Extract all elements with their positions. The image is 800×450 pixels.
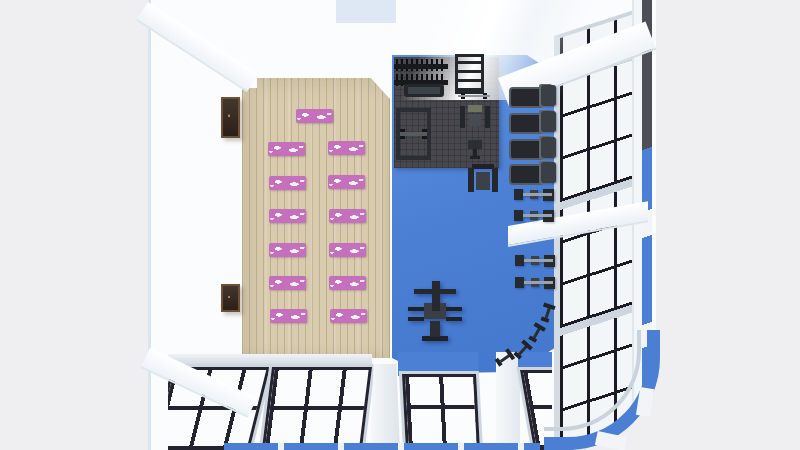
yoga-mat [268, 142, 305, 156]
yoga-mat [328, 141, 365, 155]
elliptical [513, 253, 555, 268]
barbell [458, 93, 490, 99]
yoga-mat [269, 243, 306, 257]
elliptical [512, 208, 554, 223]
yoga-mat [328, 175, 365, 189]
bench-seat [468, 140, 482, 159]
spin-bike [526, 322, 546, 344]
equipment-layer [0, 0, 800, 450]
leg-press [468, 164, 498, 196]
spin-bike [538, 303, 555, 325]
yoga-mat [269, 276, 306, 290]
gym-render [0, 0, 800, 450]
yoga-mat [296, 109, 333, 123]
elliptical [512, 187, 554, 202]
treadmill [509, 162, 556, 183]
ladder-rack [455, 54, 484, 94]
treadmill [509, 85, 556, 106]
yoga-mat [269, 209, 306, 223]
treadmill [509, 111, 556, 132]
flat-bench [404, 84, 444, 97]
shoulder-machine [460, 104, 490, 131]
power-rack [396, 108, 431, 160]
yoga-mat [270, 309, 307, 323]
yoga-mat [269, 176, 306, 190]
picture-frame [221, 97, 240, 138]
picture-frame [221, 284, 240, 312]
treadmill [509, 137, 556, 158]
yoga-mat [330, 309, 367, 323]
yoga-mat [329, 209, 366, 223]
cable-machine [408, 281, 462, 343]
yoga-mat [329, 243, 366, 257]
yoga-mat [329, 276, 366, 290]
elliptical [513, 275, 555, 290]
